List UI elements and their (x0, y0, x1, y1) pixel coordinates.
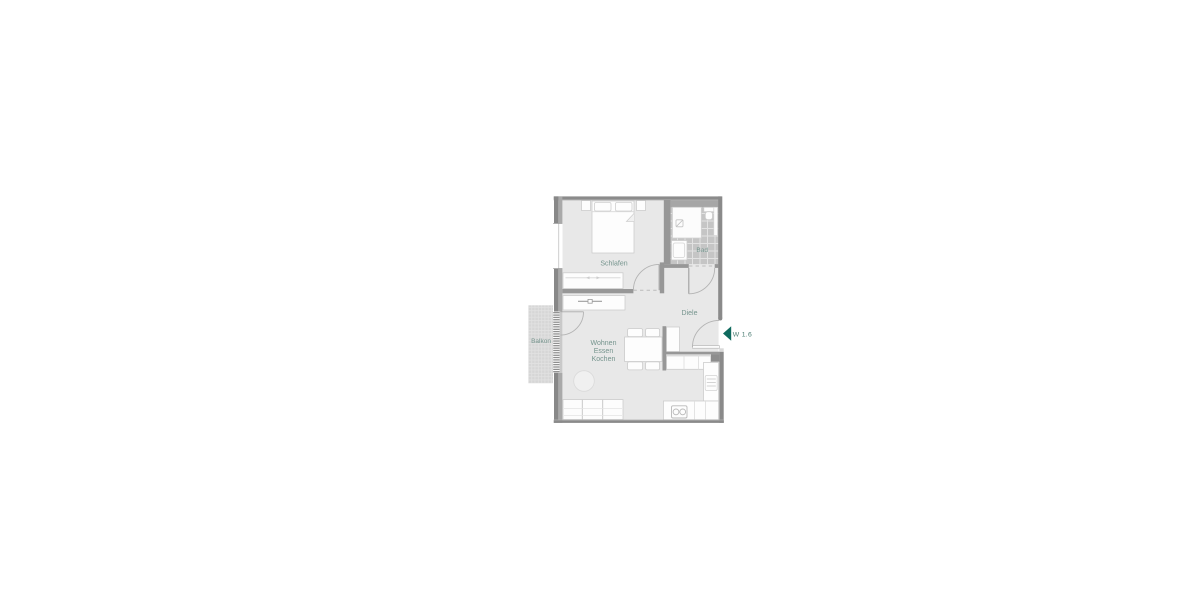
svg-text:Bad: Bad (696, 247, 708, 254)
svg-text:Balkon: Balkon (531, 338, 551, 345)
svg-text:Schlafen: Schlafen (600, 261, 627, 268)
svg-text:Kochen: Kochen (592, 356, 616, 363)
svg-text:Diele: Diele (682, 310, 698, 317)
svg-text:Wohnen: Wohnen (591, 340, 617, 347)
svg-text:Essen: Essen (594, 348, 614, 355)
svg-text:W 1.6: W 1.6 (733, 332, 752, 339)
